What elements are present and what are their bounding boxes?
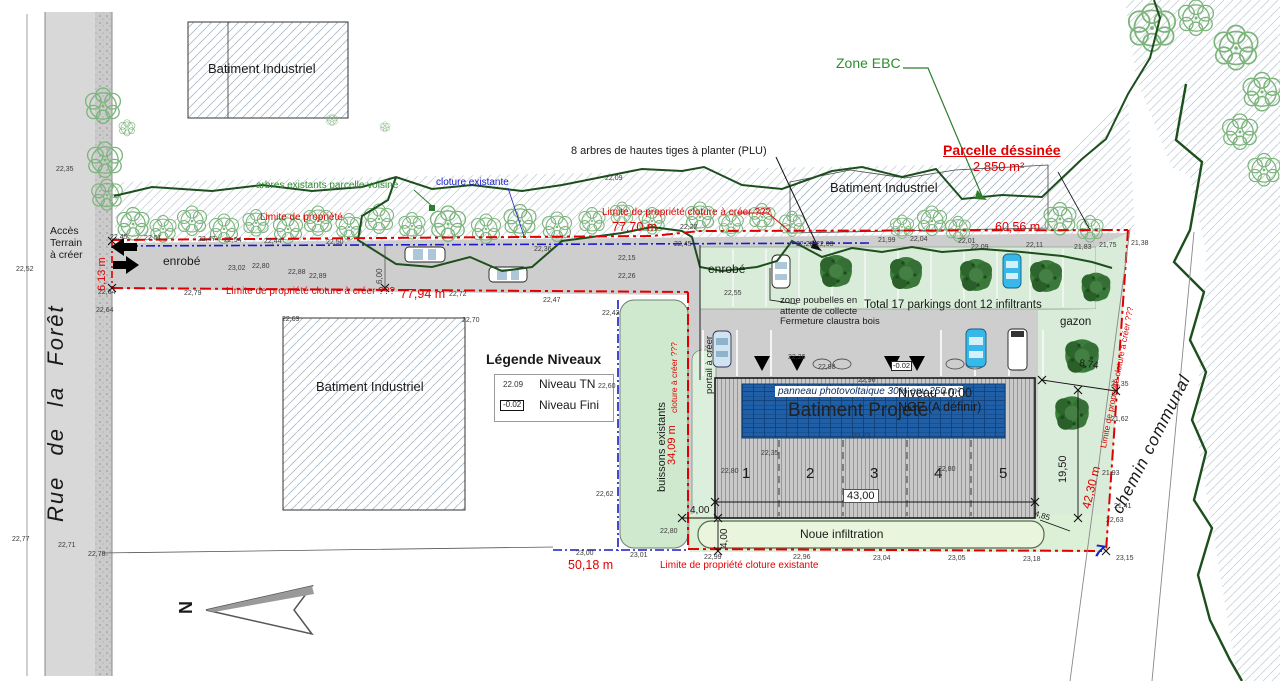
existing-trees-note: arbres existants parcelle voisine (256, 180, 398, 191)
elevation-label: 22,45 (110, 234, 128, 241)
elevation-label: 21,83 (1074, 244, 1092, 251)
north-arrow-icon (206, 586, 314, 634)
dim-building-depth: 19,50 (1057, 455, 1069, 483)
elevation-label: 22,09 (971, 244, 989, 251)
industrial-building-label: Batiment Industriel (830, 181, 938, 196)
elevation-label: 22,47 (543, 297, 561, 304)
elevation-label: 22,80 (721, 468, 739, 475)
elevation-label: 22,15 (618, 255, 636, 262)
road-name-left: Rue de la Forêt (44, 304, 69, 522)
elevation-label: 21,93 (1102, 470, 1120, 477)
elevation-label: 22,89 (309, 273, 327, 280)
elevation-label: 22,52 (16, 266, 34, 273)
elevation-label: 22,73 (853, 433, 871, 440)
gazon-label: gazon (1060, 316, 1091, 329)
elevation-label: 22,96 (858, 377, 876, 384)
elevation-label: 22,54 (224, 237, 242, 244)
dim-access-width: 6,13 m (96, 257, 108, 291)
noue-label: Noue infiltration (800, 528, 883, 541)
elevation-label: 22,26 (618, 273, 636, 280)
elevation-label: 22,42 (602, 310, 620, 317)
dim-west-inner: 34,09 m (666, 425, 678, 465)
elevation-label: 22,11 (1026, 242, 1043, 249)
property-limit-fence-label: Limite de propriété cloture à créer ??? (602, 207, 771, 218)
elevation-label: 22,55 (724, 290, 742, 297)
legend-fini-sample: -0.02 (500, 400, 524, 411)
elevation-label: 22,96 (793, 554, 811, 561)
enrobe-label: enrobé (708, 263, 745, 276)
elevation-label: 22,77 (12, 536, 30, 543)
elevation-label: 22,72 (449, 291, 467, 298)
elevation-label: 21,62 (1111, 416, 1129, 423)
elevation-label: 22,09 (605, 175, 623, 182)
elevation-label: 22,44 (264, 238, 282, 245)
elevation-label: 23,04 (873, 555, 891, 562)
industrial-building-label: Batiment Industriel (208, 62, 316, 77)
elevation-label: 22,71 (58, 542, 76, 549)
van-icon (1008, 329, 1027, 370)
elevation-label: 22,35 (56, 166, 74, 173)
elevation-label: 23,02 (228, 265, 246, 272)
elevation-label: 22,98 (818, 364, 836, 371)
elevation-label: 23,05 (948, 555, 966, 562)
trees-to-plant-note: 8 arbres de hautes tiges à planter (PLU) (571, 145, 767, 157)
elevation-label: 23,00 (576, 550, 594, 557)
elevation-label: 22,79 (184, 290, 202, 297)
legend-title: Légende Niveaux (486, 352, 601, 368)
dim-gap-south: 4,00 (719, 529, 730, 548)
elevation-label: 22,99 (704, 554, 722, 561)
industrial-building-mid-left (283, 318, 465, 510)
elevation-label: 22,69 (282, 316, 300, 323)
elevation-label: 22,64 (98, 289, 116, 296)
zone-ebc-label: Zone EBC (836, 56, 901, 72)
elevation-label: 22,36 (534, 246, 552, 253)
north-label: N (176, 601, 196, 614)
access-note: Accès Terrain à créer (50, 226, 83, 261)
elevation-label: 23,15 (1116, 555, 1134, 562)
dim-north-east: 60,56 m (995, 220, 1040, 234)
elevation-label: 22,03 (816, 241, 834, 248)
elevation-label: 22,45 (674, 241, 692, 248)
elevation-label: 22,04 (910, 236, 928, 243)
parking-total-note: Total 17 parkings dont 12 infiltrants (864, 299, 1042, 312)
elevation-label: 22,50 (326, 239, 344, 246)
finished-level-box: -0.02 (891, 361, 912, 371)
elevation-label: 22,51 (144, 235, 162, 242)
elevation-label: 23,01 (630, 552, 648, 559)
elevation-label: 22,35 (761, 450, 779, 457)
elevation-label: 22,28 (796, 241, 814, 248)
elevation-label: 22,62 (596, 491, 614, 498)
building-level-note: Niveau +0.00 NGF (A définir) (898, 386, 981, 414)
elevation-label: 22,64 (96, 307, 114, 314)
elevation-label: 21,99 (878, 237, 896, 244)
industrial-building-label: Batiment Industriel (316, 380, 424, 395)
existing-fence-note: cloture existante (436, 177, 509, 188)
legend-fini-label: Niveau Fini (539, 399, 599, 412)
bay-number: 2 (806, 466, 814, 483)
car-icon (966, 329, 986, 367)
elevation-label: 22,60 (598, 383, 616, 390)
legend-tn-sample: 22.09 (503, 381, 523, 390)
elevation-label: 22,22 (680, 224, 698, 231)
plan-drawing (0, 0, 1280, 681)
legend-box: 22.09 Niveau TN -0.02 Niveau Fini (494, 374, 614, 422)
dim-bottom: 50,18 m (568, 558, 613, 572)
elevation-label: 22,88 (288, 269, 306, 276)
bay-number: 3 (870, 466, 878, 483)
dim-south-west: 77,94 m (400, 287, 445, 301)
elevation-label: 22,47 (198, 236, 216, 243)
parcel-area: 2 850 m² (973, 160, 1024, 175)
bay-number: 5 (999, 466, 1007, 483)
property-limit-fence-label: Limite de propriété cloture à créer ??? (226, 286, 395, 297)
dim-north-west: 77,70 m (612, 220, 657, 234)
gate-note: portail à créer (705, 336, 716, 394)
dim-gap-west: 4,00 (690, 505, 709, 516)
elevation-label: 22,70 (462, 317, 480, 324)
elevation-label: 22,80 (252, 263, 270, 270)
elevation-label: 22,78 (88, 551, 106, 558)
existing-limit-label: Limite de propriété cloture existante (660, 560, 818, 571)
elevation-label: 21,35 (1111, 381, 1129, 388)
elevation-label: 21,75 (1099, 242, 1117, 249)
elevation-label: 21,41 (1114, 503, 1132, 510)
elevation-label: 22,26 (788, 354, 806, 361)
elevation-label: 22,63 (1106, 517, 1124, 524)
dim-building-width: 43,00 (843, 489, 879, 503)
buissons-strip (620, 300, 688, 548)
enrobe-label: enrobé (163, 255, 200, 268)
elevation-label: 23,18 (1023, 556, 1041, 563)
elevation-label: 21,38 (1131, 240, 1149, 247)
bay-number: 1 (742, 466, 750, 483)
car-icon (713, 331, 731, 367)
elevation-label: 22,80 (660, 528, 678, 535)
legend-tn-label: Niveau TN (539, 378, 595, 391)
property-limit-label: Limite de propriété (260, 212, 343, 223)
elevation-label: 22,80 (938, 466, 956, 473)
car-icon (772, 255, 790, 288)
car-icon (1003, 254, 1021, 288)
fence-to-create-note: cloture à créer ??? (670, 342, 680, 413)
site-plan: Rue de la Forêt chemin communal Accès Te… (0, 0, 1280, 681)
car-icon (405, 247, 445, 262)
dim-drive-width: 6,00 (376, 268, 385, 284)
parcel-title: Parcelle déssinée (943, 143, 1061, 159)
